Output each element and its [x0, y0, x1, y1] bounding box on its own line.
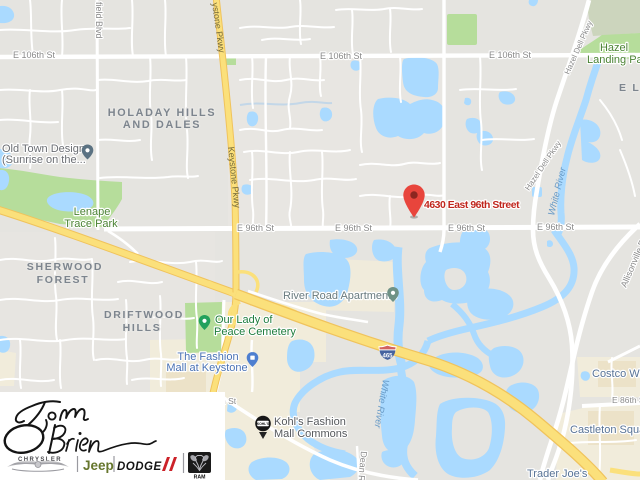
svg-text:4630 East 96th Street: 4630 East 96th Street — [424, 200, 520, 211]
svg-text:Hazel: Hazel — [600, 42, 628, 54]
svg-text:HOLADAY HILLS: HOLADAY HILLS — [108, 107, 217, 119]
svg-text:Peace Cemetery: Peace Cemetery — [214, 326, 296, 338]
svg-text:River Road Apartments: River Road Apartments — [283, 290, 397, 302]
svg-text:HILLS: HILLS — [123, 322, 162, 334]
svg-text:Mall Commons: Mall Commons — [274, 428, 348, 440]
svg-text:Lenape: Lenape — [74, 206, 111, 218]
svg-text:Trace Park: Trace Park — [64, 218, 118, 230]
svg-text:(Sunrise on the...: (Sunrise on the... — [2, 154, 86, 166]
svg-text:AND DALES: AND DALES — [123, 119, 201, 131]
svg-text:FOREST: FOREST — [37, 274, 90, 286]
svg-text:E 96th St: E 96th St — [537, 222, 575, 232]
svg-text:E 106th St: E 106th St — [320, 51, 363, 61]
svg-text:E 106th St: E 106th St — [13, 50, 56, 60]
svg-text:RAM: RAM — [194, 475, 206, 480]
svg-text:E 106th St: E 106th St — [489, 50, 532, 60]
svg-text:KOHL'S: KOHL'S — [257, 422, 270, 426]
svg-text:Kohl's Fashion: Kohl's Fashion — [274, 416, 346, 428]
svg-text:Castleton Squa: Castleton Squa — [570, 424, 640, 436]
svg-text:E 96th St: E 96th St — [237, 223, 275, 233]
svg-text:465: 465 — [382, 353, 393, 359]
svg-text:Costco Wh: Costco Wh — [592, 368, 640, 380]
svg-text:Our Lady of: Our Lady of — [215, 314, 273, 326]
svg-text:DRIFTWOOD: DRIFTWOOD — [104, 309, 184, 321]
svg-text:SHERWOOD: SHERWOOD — [27, 261, 103, 273]
svg-text:E 96th St: E 96th St — [448, 223, 486, 233]
svg-text:Mall at Keystone: Mall at Keystone — [166, 362, 247, 374]
svg-text:field Blvd: field Blvd — [94, 2, 104, 39]
svg-text:Trader Joe's: Trader Joe's — [527, 468, 588, 480]
svg-text:DODGE: DODGE — [117, 461, 162, 473]
svg-text:E L L: E L L — [619, 82, 640, 94]
svg-text:E 96th St: E 96th St — [335, 223, 373, 233]
svg-text:Landing Park: Landing Park — [587, 54, 640, 66]
svg-text:Jeep: Jeep — [83, 458, 114, 473]
svg-text:E 86th St: E 86th St — [612, 395, 640, 405]
